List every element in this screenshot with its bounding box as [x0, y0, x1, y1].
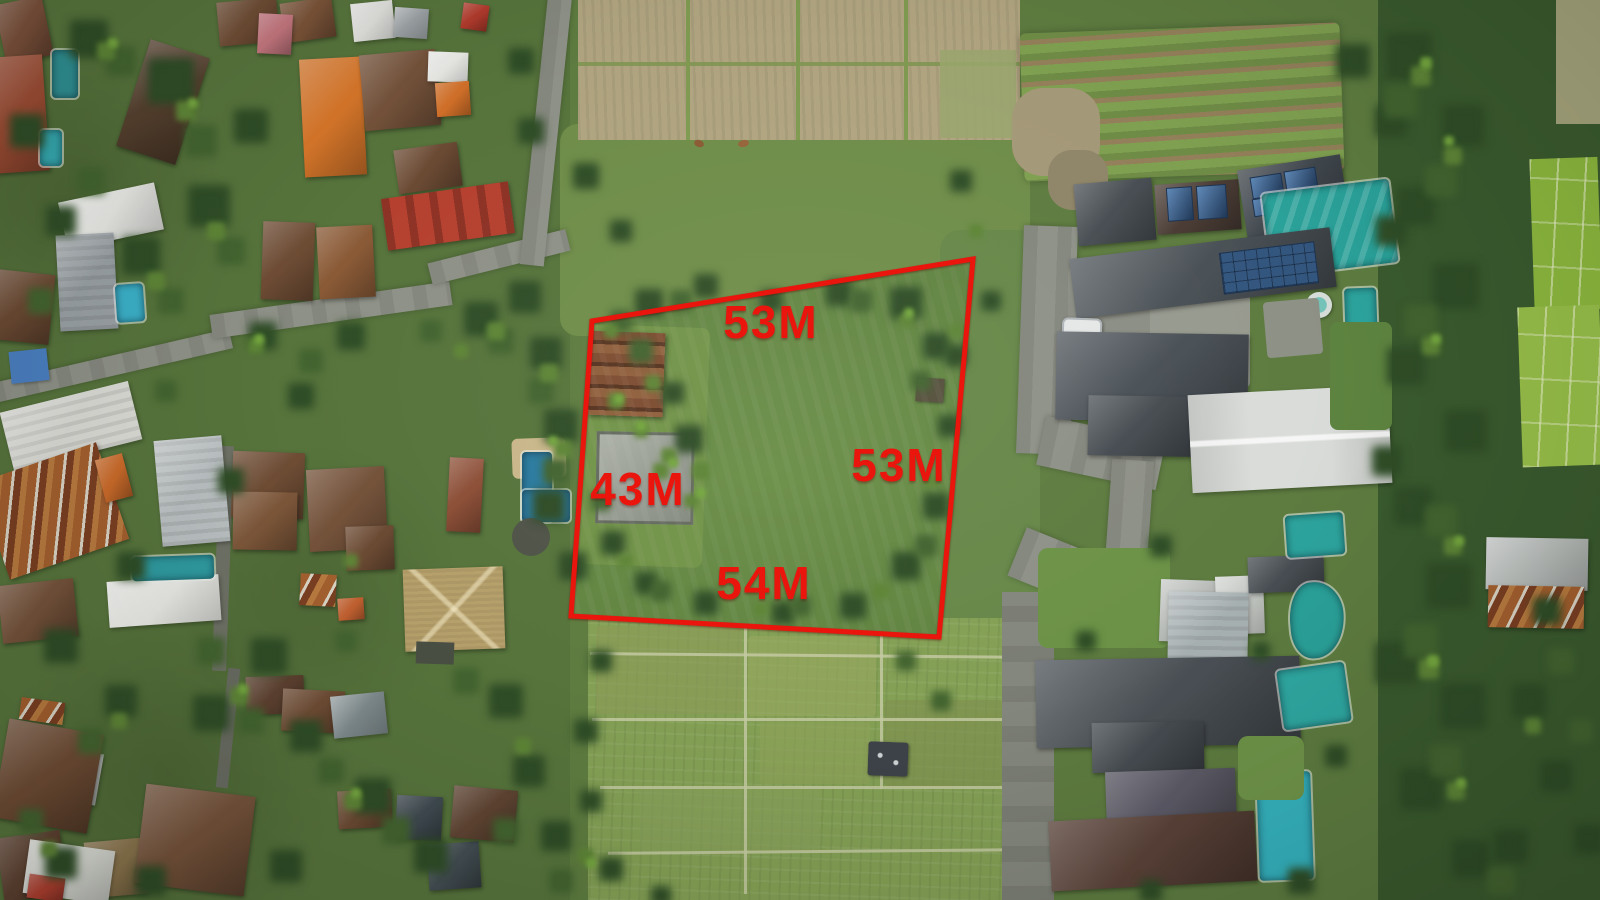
measurement-label-bottom: 54M	[716, 556, 811, 610]
measurement-label-left: 43M	[590, 462, 685, 516]
measurement-label-top: 53M	[723, 295, 818, 349]
aerial-photo: 53M 53M 43M 54M	[0, 0, 1600, 900]
measurement-label-right: 53M	[851, 438, 946, 492]
annotation-overlay	[0, 0, 1600, 900]
